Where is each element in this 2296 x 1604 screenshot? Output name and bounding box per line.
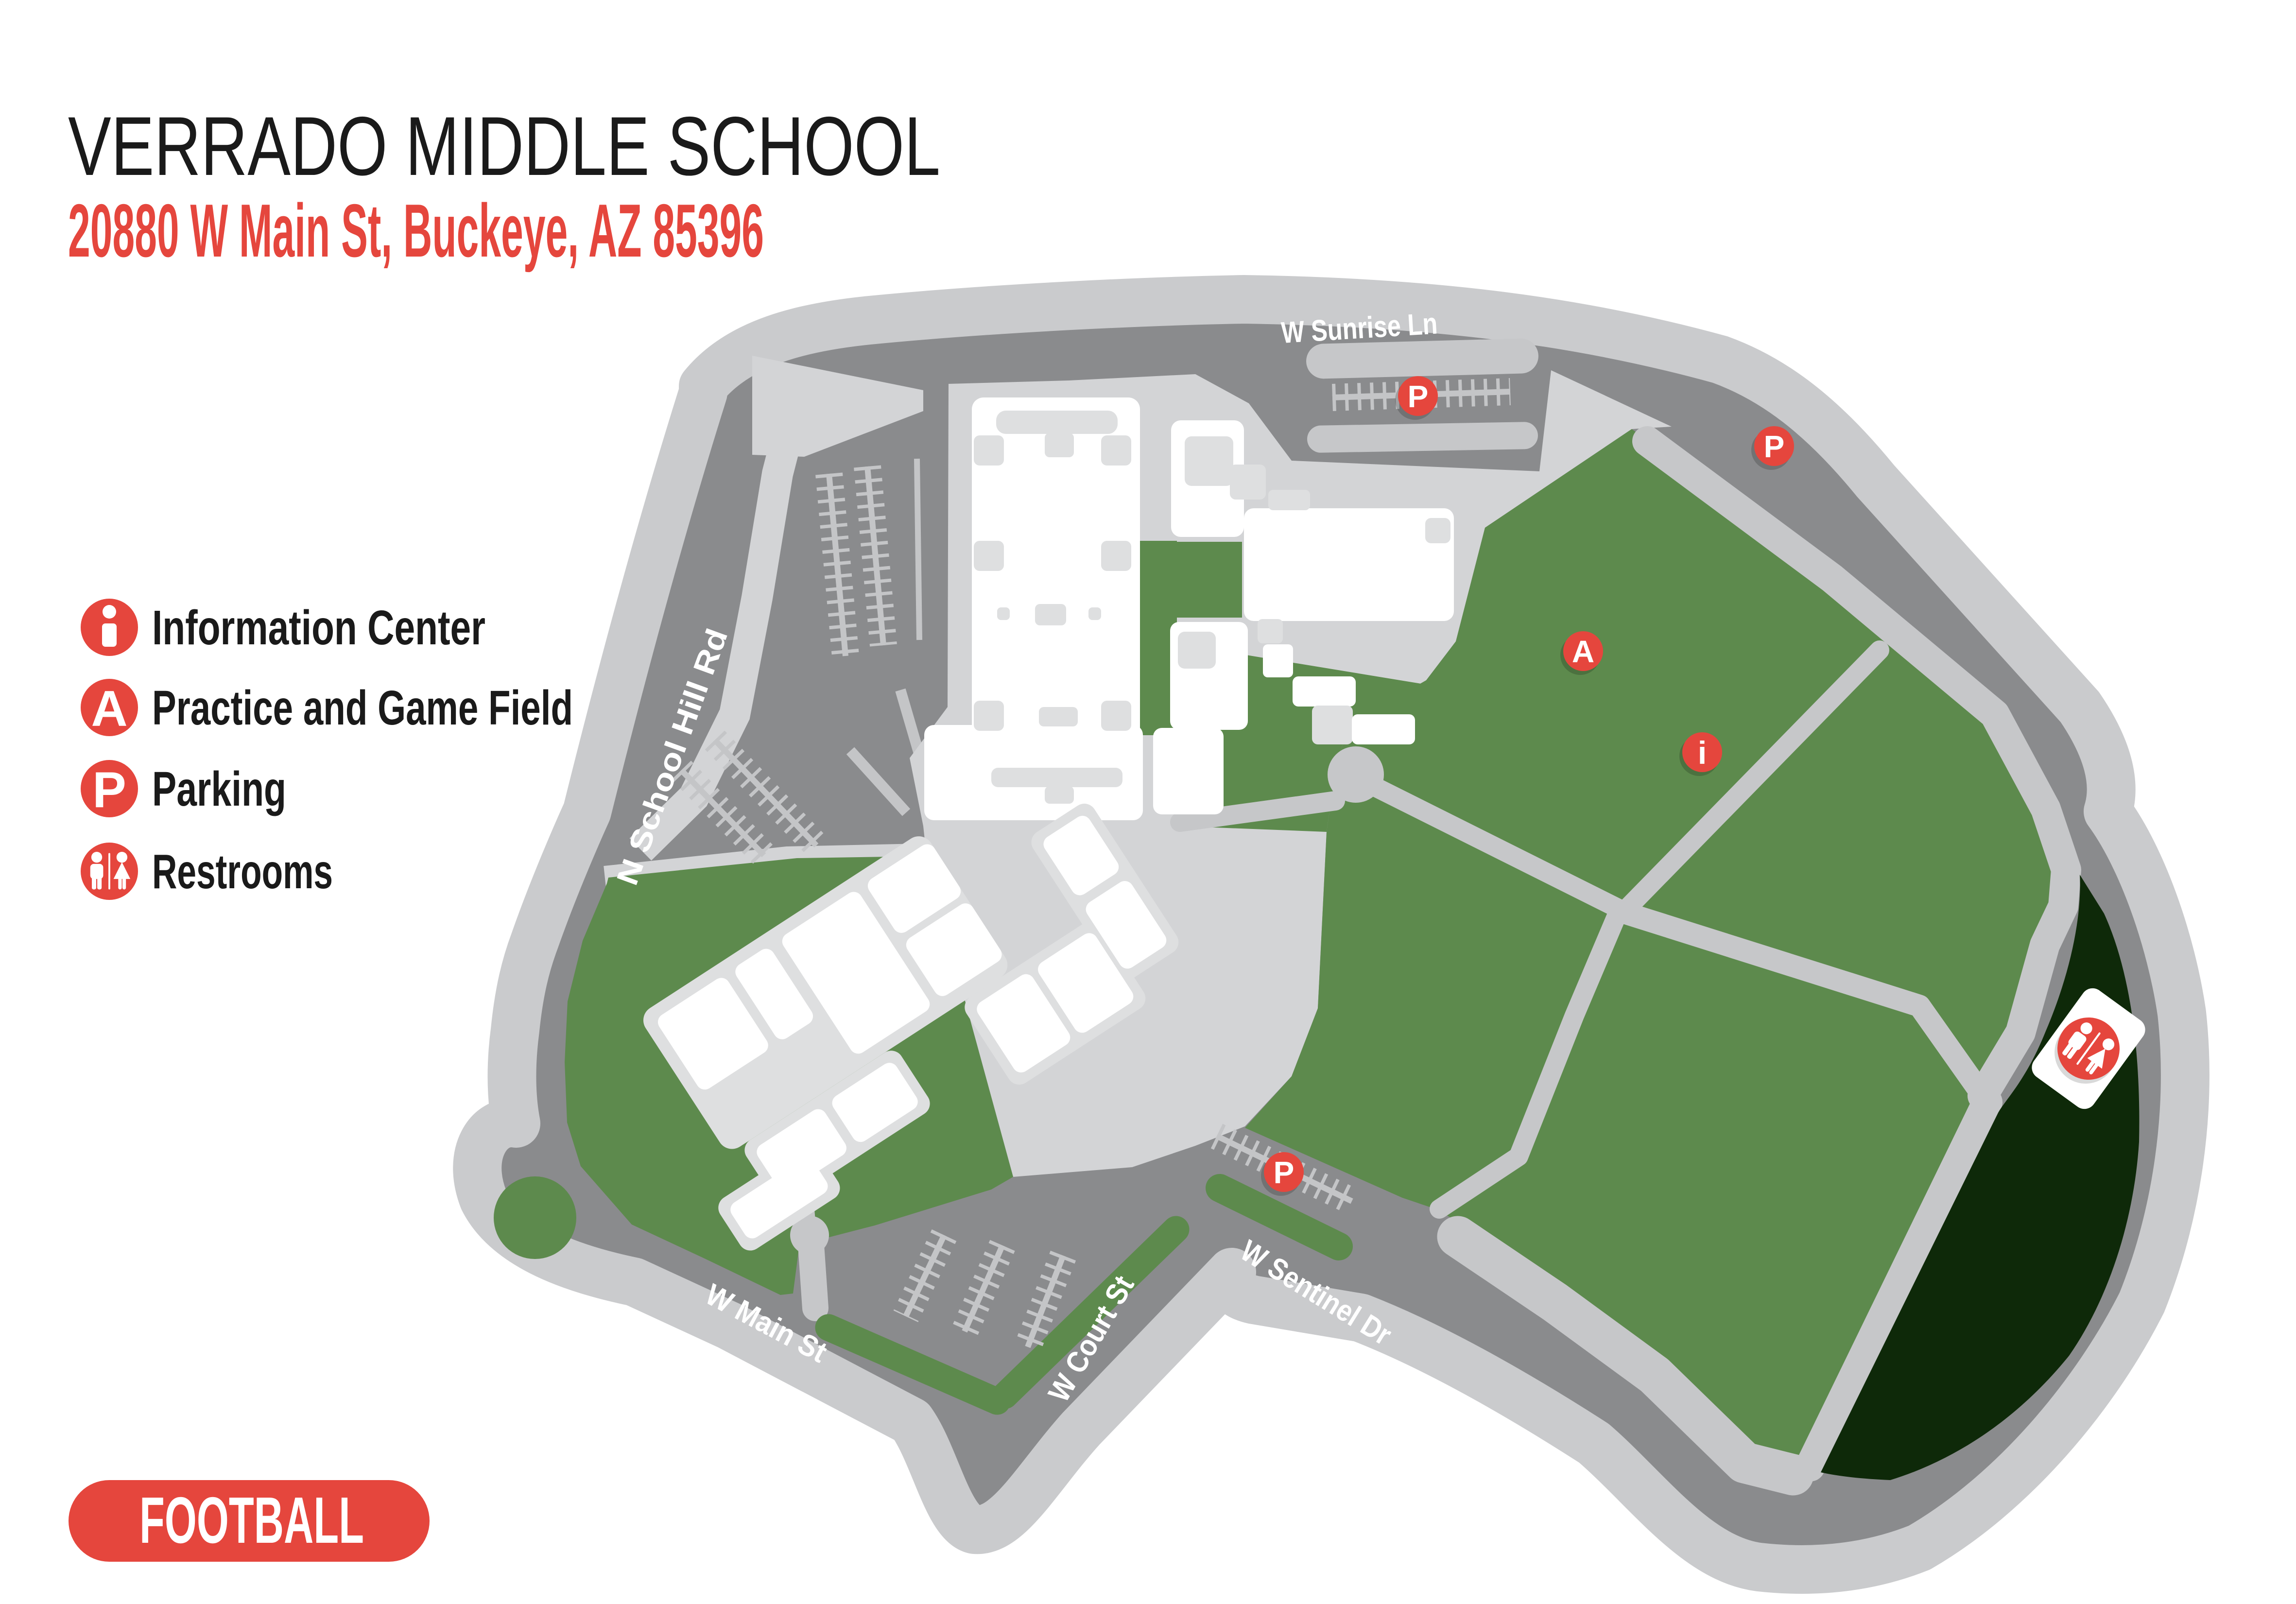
svg-text:Restrooms: Restrooms	[152, 845, 333, 899]
svg-text:P: P	[1274, 1155, 1295, 1190]
svg-text:Practice and Game Field: Practice and Game Field	[152, 681, 573, 735]
svg-text:P: P	[1408, 379, 1429, 414]
svg-text:A: A	[91, 681, 127, 737]
svg-text:20880 W Main St, Buckeye, AZ 8: 20880 W Main St, Buckeye, AZ 85396	[68, 189, 764, 273]
svg-text:Parking: Parking	[152, 762, 286, 816]
svg-text:i: i	[1698, 735, 1707, 771]
svg-text:Information Center: Information Center	[152, 601, 485, 655]
svg-text:A: A	[1572, 634, 1594, 669]
svg-text:P: P	[92, 762, 126, 818]
svg-text:VERRADO MIDDLE SCHOOL: VERRADO MIDDLE SCHOOL	[68, 100, 940, 193]
svg-text:P: P	[1764, 429, 1785, 464]
svg-text:FOOTBALL: FOOTBALL	[139, 1483, 364, 1557]
